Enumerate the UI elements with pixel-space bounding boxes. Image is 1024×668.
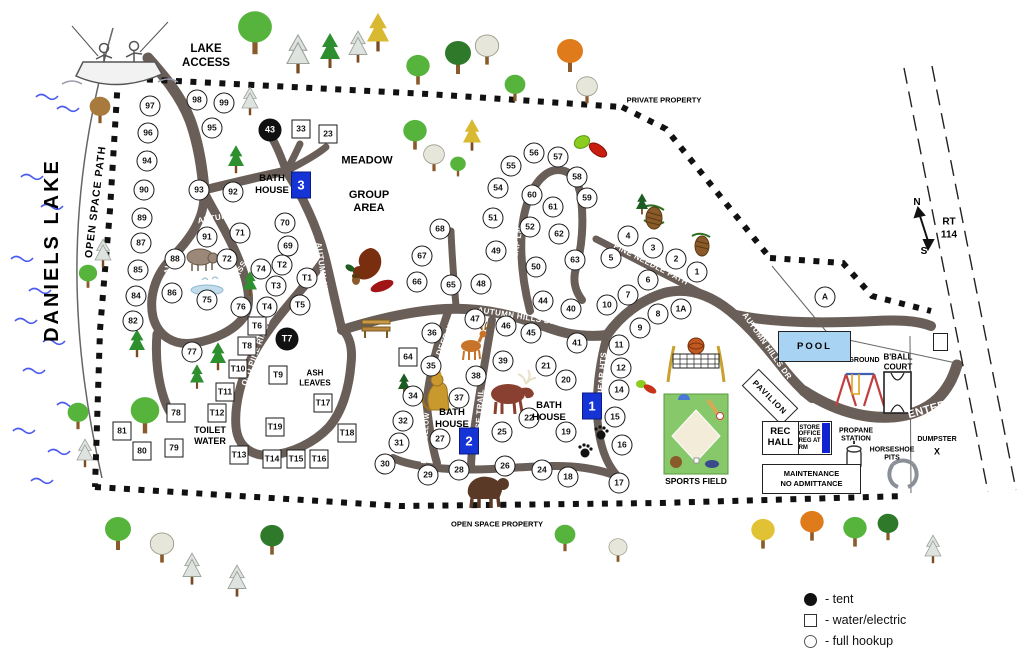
oak-tree-icon [449, 155, 467, 180]
bath-house-3-marker: 3 [291, 172, 311, 199]
site-2: 2 [666, 249, 687, 270]
dumpster-label: DUMPSTER [917, 436, 956, 444]
site-30: 30 [375, 454, 396, 475]
oak-tree-icon [503, 73, 527, 106]
site-T6: T6 [248, 317, 267, 336]
compass-south-label: S [921, 246, 928, 258]
site-56: 56 [524, 143, 545, 164]
pine-tree-icon [188, 363, 206, 393]
site-46: 46 [496, 316, 517, 337]
legend-tent-label: - tent [825, 592, 854, 606]
maintenance-building: MAINTENANCE NO ADMITTANCE [762, 464, 861, 494]
maintenance-line1: MAINTENANCE [784, 469, 839, 479]
oak-tree-icon [103, 515, 133, 556]
site-T3: T3 [266, 276, 287, 297]
site-1A: 1A [671, 299, 692, 320]
site-79: 79 [165, 439, 184, 458]
lake-name-label: DANIELS LAKE [40, 158, 64, 342]
compass-arrow-icon [915, 208, 933, 249]
dumpster-x-label: X [934, 447, 940, 458]
ash-leaves-line2: LEAVES [299, 378, 330, 388]
site-63: 63 [565, 250, 586, 271]
site-66: 66 [407, 272, 428, 293]
site-T12: T12 [208, 404, 227, 423]
rt-114-label: RT 114 [941, 217, 957, 242]
rec-hall-label: REC HALL [763, 422, 799, 454]
site-33: 33 [292, 120, 311, 139]
site-T10: T10 [229, 360, 248, 379]
yellow-pine-tree-icon [460, 117, 483, 156]
open-space-property-label: OPEN SPACE PROPERTY [451, 520, 543, 529]
park-bench-icon [362, 320, 390, 338]
site-52: 52 [520, 217, 541, 238]
baseball-field-icon [664, 394, 728, 474]
white-pine-tree-icon [75, 438, 96, 472]
site-88: 88 [165, 249, 186, 270]
site-24: 24 [532, 460, 553, 481]
water-electric-symbol-icon [804, 614, 817, 627]
site-17: 17 [609, 473, 630, 494]
white-pine-tree-icon [923, 534, 944, 568]
site-76: 76 [231, 297, 252, 318]
site-74: 74 [251, 259, 272, 280]
group-area-line2: AREA [349, 202, 389, 215]
site-19: 19 [556, 422, 577, 443]
site-T19: T19 [266, 418, 285, 437]
site-T5: T5 [290, 295, 311, 316]
site-37: 37 [449, 388, 470, 409]
legend-item-water-electric: - water/electric [804, 613, 906, 627]
site-23: 23 [319, 125, 338, 144]
site-T18: T18 [338, 424, 357, 443]
site-50: 50 [526, 257, 547, 278]
water-wave-icon [14, 312, 38, 330]
water-wave-icon [56, 100, 80, 118]
site-26: 26 [495, 456, 516, 477]
site-T2: T2 [272, 255, 293, 276]
fishing-boat-icon [62, 22, 178, 85]
group-area-label: GROUP AREA [349, 189, 389, 215]
site-14: 14 [609, 380, 630, 401]
tent-symbol-icon [804, 593, 817, 606]
store-office-label: STORE OFFICE REG AT RM [799, 422, 821, 454]
site-39: 39 [493, 351, 514, 372]
dark-oak-tree-icon [259, 523, 286, 560]
site-59: 59 [577, 188, 598, 209]
site-T17: T17 [314, 394, 333, 413]
site-91: 91 [197, 227, 218, 248]
rt-line2: 114 [941, 229, 957, 242]
pine-tree-icon [317, 31, 343, 74]
site-48: 48 [471, 274, 492, 295]
bath-house-3-label: BATHHOUSE [255, 173, 289, 197]
site-T8: T8 [238, 337, 257, 356]
orange-tree-icon [555, 37, 585, 78]
white-pine-tree-icon [225, 563, 248, 602]
pine-tree-icon [208, 341, 229, 375]
site-11: 11 [609, 335, 630, 356]
sparse-tree-icon [575, 75, 599, 108]
site-94: 94 [137, 151, 158, 172]
site-8: 8 [648, 304, 669, 325]
group-area-line1: GROUP [349, 189, 389, 202]
rec-line2: HALL [768, 438, 793, 449]
site-96: 96 [138, 123, 159, 144]
sparse-tree-icon [608, 537, 629, 566]
site-35: 35 [421, 356, 442, 377]
site-87: 87 [131, 233, 152, 254]
lake-access-line1: LAKE [182, 43, 230, 57]
sparse-tree-icon [422, 143, 446, 176]
site-16: 16 [612, 435, 633, 456]
site-81: 81 [113, 422, 132, 441]
pine-dark-tree-icon [634, 192, 650, 218]
site-72: 72 [217, 249, 238, 270]
site-7: 7 [618, 285, 639, 306]
site-80: 80 [133, 442, 152, 461]
dark-oak-tree-icon [876, 512, 900, 545]
site-49: 49 [486, 241, 507, 262]
sparse-tree-icon [474, 33, 501, 70]
horseshoe-line1: HORSESHOE [870, 447, 915, 455]
legend-item-tent: - tent [804, 592, 906, 606]
site-85: 85 [128, 260, 149, 281]
site-T16: T16 [310, 450, 329, 469]
legend-full-hookup-label: - full hookup [825, 634, 893, 648]
fence-lines [772, 266, 956, 493]
site-5: 5 [601, 248, 622, 269]
bball-court-label: B'BALL COURT [883, 352, 912, 371]
site-T9: T9 [269, 366, 288, 385]
site-45: 45 [521, 323, 542, 344]
pool-area: POOL [778, 331, 851, 362]
store-line1: STORE [799, 425, 820, 432]
site-T13: T13 [230, 446, 249, 465]
oak-tree-icon [236, 9, 275, 62]
campground-map: DANIELS LAKE OPEN SPACE PATH LAKE ACCESS… [0, 0, 1024, 668]
site-27: 27 [430, 429, 451, 450]
ash-leaves-label: ASH LEAVES [299, 368, 330, 387]
bath-house-2-marker: 2 [459, 428, 479, 455]
site-69: 69 [278, 236, 299, 257]
site-32: 32 [393, 411, 414, 432]
horseshoe-pits-label: HORSESHOE PITS [870, 447, 915, 464]
site-75: 75 [197, 290, 218, 311]
site-97: 97 [140, 96, 161, 117]
pine-tree-icon [226, 144, 247, 178]
site-99: 99 [214, 93, 235, 114]
site-18: 18 [558, 467, 579, 488]
white-pine-tree-icon [240, 86, 261, 120]
site-25: 25 [492, 422, 513, 443]
oak-leaves-acorn-icon [344, 248, 395, 295]
site-70: 70 [275, 213, 296, 234]
site-6: 6 [638, 270, 659, 291]
site-57: 57 [548, 147, 569, 168]
oak-tree-icon [842, 515, 869, 552]
water-wave-icon [22, 362, 46, 380]
site-67: 67 [412, 246, 433, 267]
oak-tree-icon [66, 401, 90, 434]
site-95: 95 [202, 118, 223, 139]
entrance-booth [933, 333, 948, 351]
rec-hall-store-building: REC HALL STORE OFFICE REG AT RM [762, 421, 832, 455]
site-41: 41 [567, 333, 588, 354]
oak-tree-icon [78, 263, 99, 292]
oak-tree-icon [129, 395, 162, 440]
site-84: 84 [126, 286, 147, 307]
site-T7: T7 [276, 328, 299, 351]
site-51: 51 [483, 208, 504, 229]
propane-station-label: PROPANE STATION [839, 428, 873, 445]
rt-114-road [904, 66, 1016, 492]
orange-tree-icon [799, 509, 826, 546]
water-wave-icon [12, 422, 36, 440]
site-31: 31 [389, 433, 410, 454]
maintenance-line2: NO ADMITTANCE [780, 479, 842, 489]
rt-line1: RT [941, 217, 957, 230]
site-86: 86 [162, 283, 183, 304]
toilet-water-line2: WATER [194, 436, 226, 447]
site-34: 34 [403, 386, 424, 407]
legend-water-electric-label: - water/electric [825, 613, 906, 627]
site-90: 90 [134, 180, 155, 201]
site-4: 4 [618, 226, 639, 247]
site-89: 89 [132, 208, 153, 229]
legend: - tent - water/electric - full hookup [804, 592, 906, 655]
dark-oak-tree-icon [443, 39, 473, 80]
site-9: 9 [630, 318, 651, 339]
site-36: 36 [422, 323, 443, 344]
site-55: 55 [501, 156, 522, 177]
water-wave-icon [47, 443, 71, 461]
volleyball-net-icon [668, 338, 724, 382]
white-pine-tree-icon [180, 551, 203, 590]
propane-line2: STATION [839, 436, 873, 444]
site-82: 82 [123, 311, 144, 332]
sports-field-label: SPORTS FIELD [665, 476, 727, 486]
site-29: 29 [418, 465, 439, 486]
toilet-water-label: TOILET WATER [194, 425, 226, 447]
lake-access-line2: ACCESS [182, 57, 230, 71]
store-line3: REG AT RM [799, 438, 821, 451]
legend-item-full-hookup: - full hookup [804, 634, 906, 648]
site-1: 1 [687, 262, 708, 283]
store-line2: OFFICE [799, 431, 821, 438]
pool-label: POOL [797, 341, 832, 352]
yellow-tree-icon [750, 517, 777, 554]
site-92: 92 [223, 182, 244, 203]
site-T4: T4 [257, 297, 278, 318]
site-98: 98 [187, 90, 208, 111]
ash-leaves-line1: ASH [299, 368, 330, 378]
store-blue-marker [822, 423, 830, 453]
site-44: 44 [533, 291, 554, 312]
private-property-label: PRIVATE PROPERTY [627, 96, 702, 105]
white-pine-tree-icon [284, 33, 313, 80]
site-93: 93 [189, 180, 210, 201]
site-43: 43 [259, 119, 282, 142]
site-3: 3 [643, 238, 664, 259]
site-21: 21 [536, 356, 557, 377]
maple-leaves-icon [572, 133, 609, 160]
site-T14: T14 [263, 450, 282, 469]
site-77: 77 [182, 342, 203, 363]
site-28: 28 [449, 460, 470, 481]
water-wave-icon [30, 472, 54, 490]
oak-tree-icon [405, 53, 432, 90]
bball-line2: COURT [883, 362, 912, 372]
site-20: 20 [556, 370, 577, 391]
site-38: 38 [466, 366, 487, 387]
site-15: 15 [605, 407, 626, 428]
bball-line1: B'BALL [883, 352, 912, 362]
site-58: 58 [567, 167, 588, 188]
site-68: 68 [430, 219, 451, 240]
oak-tree-icon [553, 523, 577, 556]
area-marker-A: A [815, 287, 836, 308]
site-62: 62 [549, 224, 570, 245]
site-71: 71 [230, 223, 251, 244]
horseshoe-line2: PITS [870, 455, 915, 463]
site-78: 78 [167, 404, 186, 423]
brown-tree-icon [88, 95, 112, 128]
site-12: 12 [611, 358, 632, 379]
toilet-water-line1: TOILET [194, 425, 226, 436]
water-wave-icon [10, 250, 34, 268]
site-60: 60 [522, 185, 543, 206]
pine-tree-icon [127, 328, 148, 362]
basketball-court-icon [884, 372, 911, 413]
horseshoe-icon [889, 461, 916, 488]
full-hookup-symbol-icon [804, 635, 817, 648]
sparse-tree-icon [149, 531, 176, 568]
site-T1: T1 [297, 268, 318, 289]
site-54: 54 [488, 178, 509, 199]
compass-north-label: N [913, 197, 920, 209]
site-T15: T15 [287, 450, 306, 469]
small-leaves-icon [636, 380, 658, 396]
lake-access-label: LAKE ACCESS [182, 43, 230, 71]
site-65: 65 [441, 275, 462, 296]
site-10: 10 [597, 295, 618, 316]
site-40: 40 [561, 299, 582, 320]
site-61: 61 [543, 197, 564, 218]
meadow-label: MEADOW [341, 154, 392, 167]
site-64: 64 [399, 348, 418, 367]
propane-line1: PROPANE [839, 428, 873, 436]
bath-house-1-label: BATHHOUSE [532, 400, 566, 424]
site-47: 47 [465, 309, 486, 330]
swing-set-icon [836, 374, 884, 406]
yellow-pine-tree-icon [364, 11, 393, 58]
bath-house-1-marker: 1 [582, 393, 602, 420]
site-T11: T11 [216, 383, 235, 402]
